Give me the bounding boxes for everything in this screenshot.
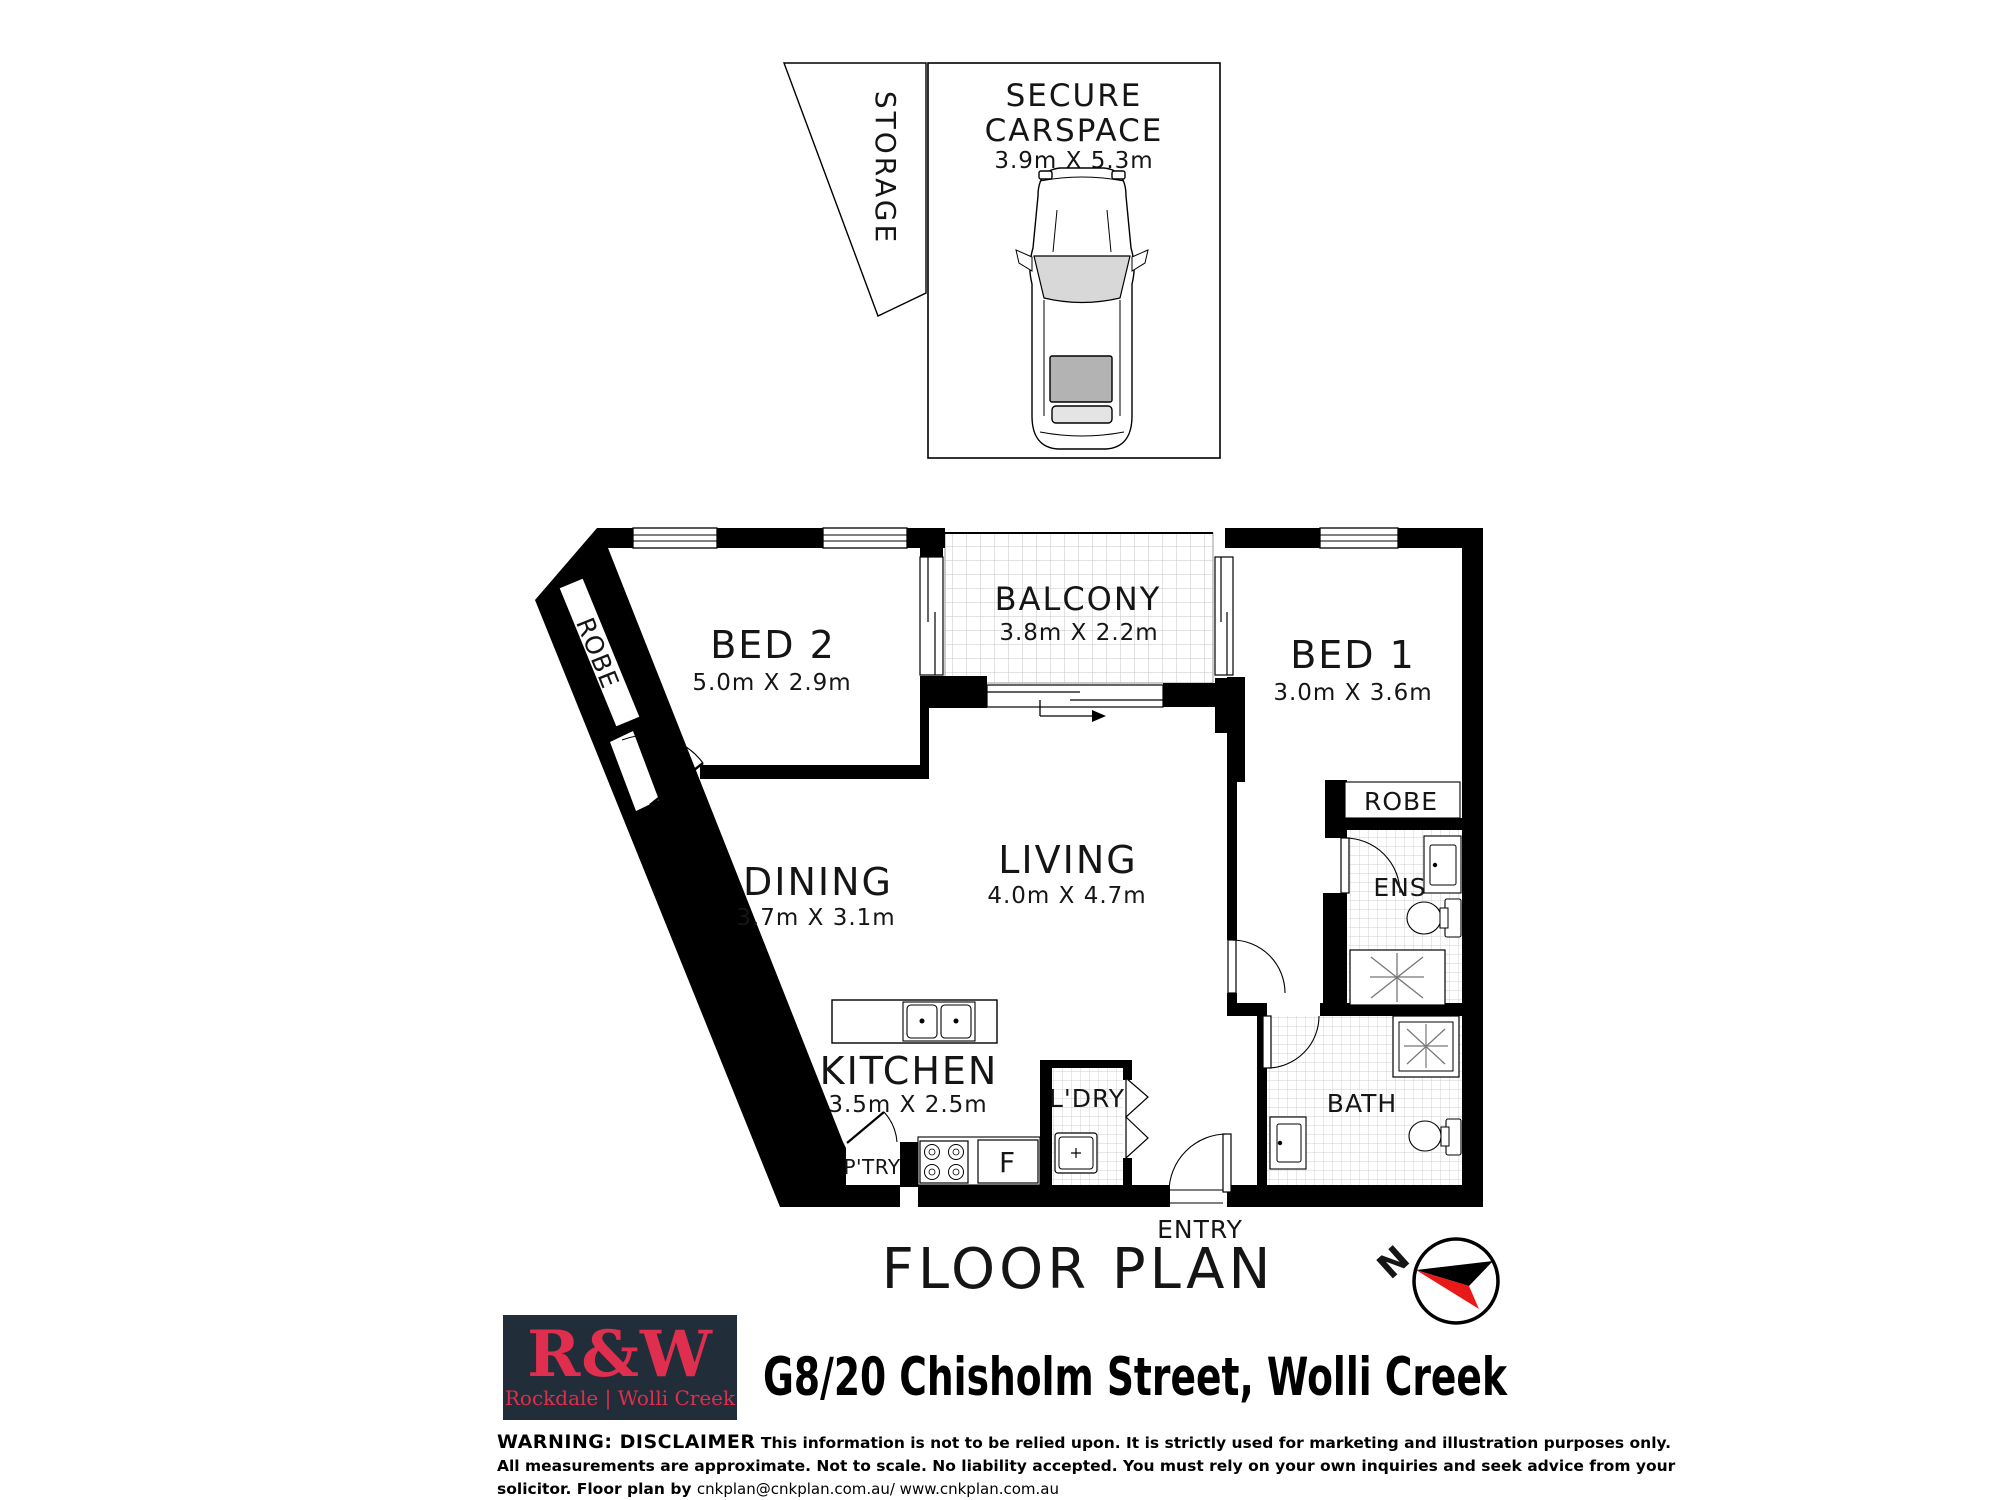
bath-sink [1270,1117,1306,1169]
washing-machine [1055,1133,1097,1173]
disclaimer-contact: cnkplan@cnkplan.com.au/ www.cnkplan.com.… [697,1480,1059,1498]
living-label: LIVING [998,838,1137,882]
ensuite-vanity [1424,836,1461,893]
property-address: G8/20 Chisholm Street, Wolli Creek [763,1347,1507,1408]
disclaimer-line3: solicitor. Floor plan by [497,1480,697,1498]
agency-logo: R&W Rockdale | Wolli Creek [503,1315,737,1420]
disclaimer-warning: WARNING: DISCLAIMER [497,1431,756,1453]
north-label: N [1370,1238,1418,1287]
disclaimer-line2: All measurements are approximate. Not to… [497,1457,1675,1475]
floorplan-drawing: STORAGE SECURE CARSPACE 3.9m X 5.3m [0,0,2000,1500]
bed1-door [1228,940,1285,993]
bed2-label: BED 2 [710,623,836,667]
carspace-title-line2: CARSPACE [985,113,1164,149]
balcony-sliding-window-left [920,557,943,675]
bed1-dims: 3.0m X 3.6m [1273,680,1432,706]
storage-area: STORAGE [784,63,926,316]
floorplan-page: STORAGE SECURE CARSPACE 3.9m X 5.3m [0,0,2000,1500]
stove [920,1141,968,1183]
carspace-title-line1: SECURE [1006,78,1143,114]
storage-label: STORAGE [869,91,902,245]
dining-label: DINING [743,860,893,904]
entry-door [1169,1134,1231,1203]
balcony-sliding-door [987,685,1163,722]
agency-logo-subtext: Rockdale | Wolli Creek [505,1385,735,1411]
floor-plan: BED 2 5.0m X 2.9m BALCONY 3.8m X 2.2m BE… [535,528,1483,1244]
balcony-sliding-window-right [1215,557,1233,675]
fridge-label: F [999,1146,1015,1179]
ensuite-toilet [1407,899,1461,937]
carspace-area: SECURE CARSPACE 3.9m X 5.3m [928,63,1220,458]
dining-dims: 3.7m X 3.1m [736,905,895,931]
balcony-dims: 3.8m X 2.2m [999,620,1158,646]
living-dims: 4.0m X 4.7m [987,883,1146,909]
balcony-label: BALCONY [995,580,1162,618]
bed2-window-1 [633,528,717,548]
pantry-label: P'TRY [843,1155,900,1179]
bath-label: BATH [1327,1089,1397,1118]
disclaimer-line1: This information is not to be relied upo… [761,1434,1671,1452]
page-title: FLOOR PLAN [882,1237,1275,1302]
kitchen-island [832,1000,997,1043]
ensuite-shower [1350,950,1445,1005]
laundry-label: L'DRY [1049,1084,1125,1113]
agency-logo-text: R&W [527,1325,713,1385]
ensuite-label: ENS [1373,873,1426,902]
kitchen-label: KITCHEN [820,1049,999,1093]
bed1-window [1320,528,1398,548]
bed2-dims: 5.0m X 2.9m [692,670,851,696]
disclaimer-text: WARNING: DISCLAIMER This information is … [497,1431,1547,1500]
bed1-label: BED 1 [1290,633,1416,677]
kitchen-dims: 3.5m X 2.5m [828,1092,987,1118]
bath-shower [1393,1016,1459,1077]
laundry-bifold-doors [1126,1078,1148,1158]
compass: N [1370,1238,1498,1323]
bed2-window-2 [823,528,907,548]
bed1-robe-label: ROBE [1364,787,1438,816]
